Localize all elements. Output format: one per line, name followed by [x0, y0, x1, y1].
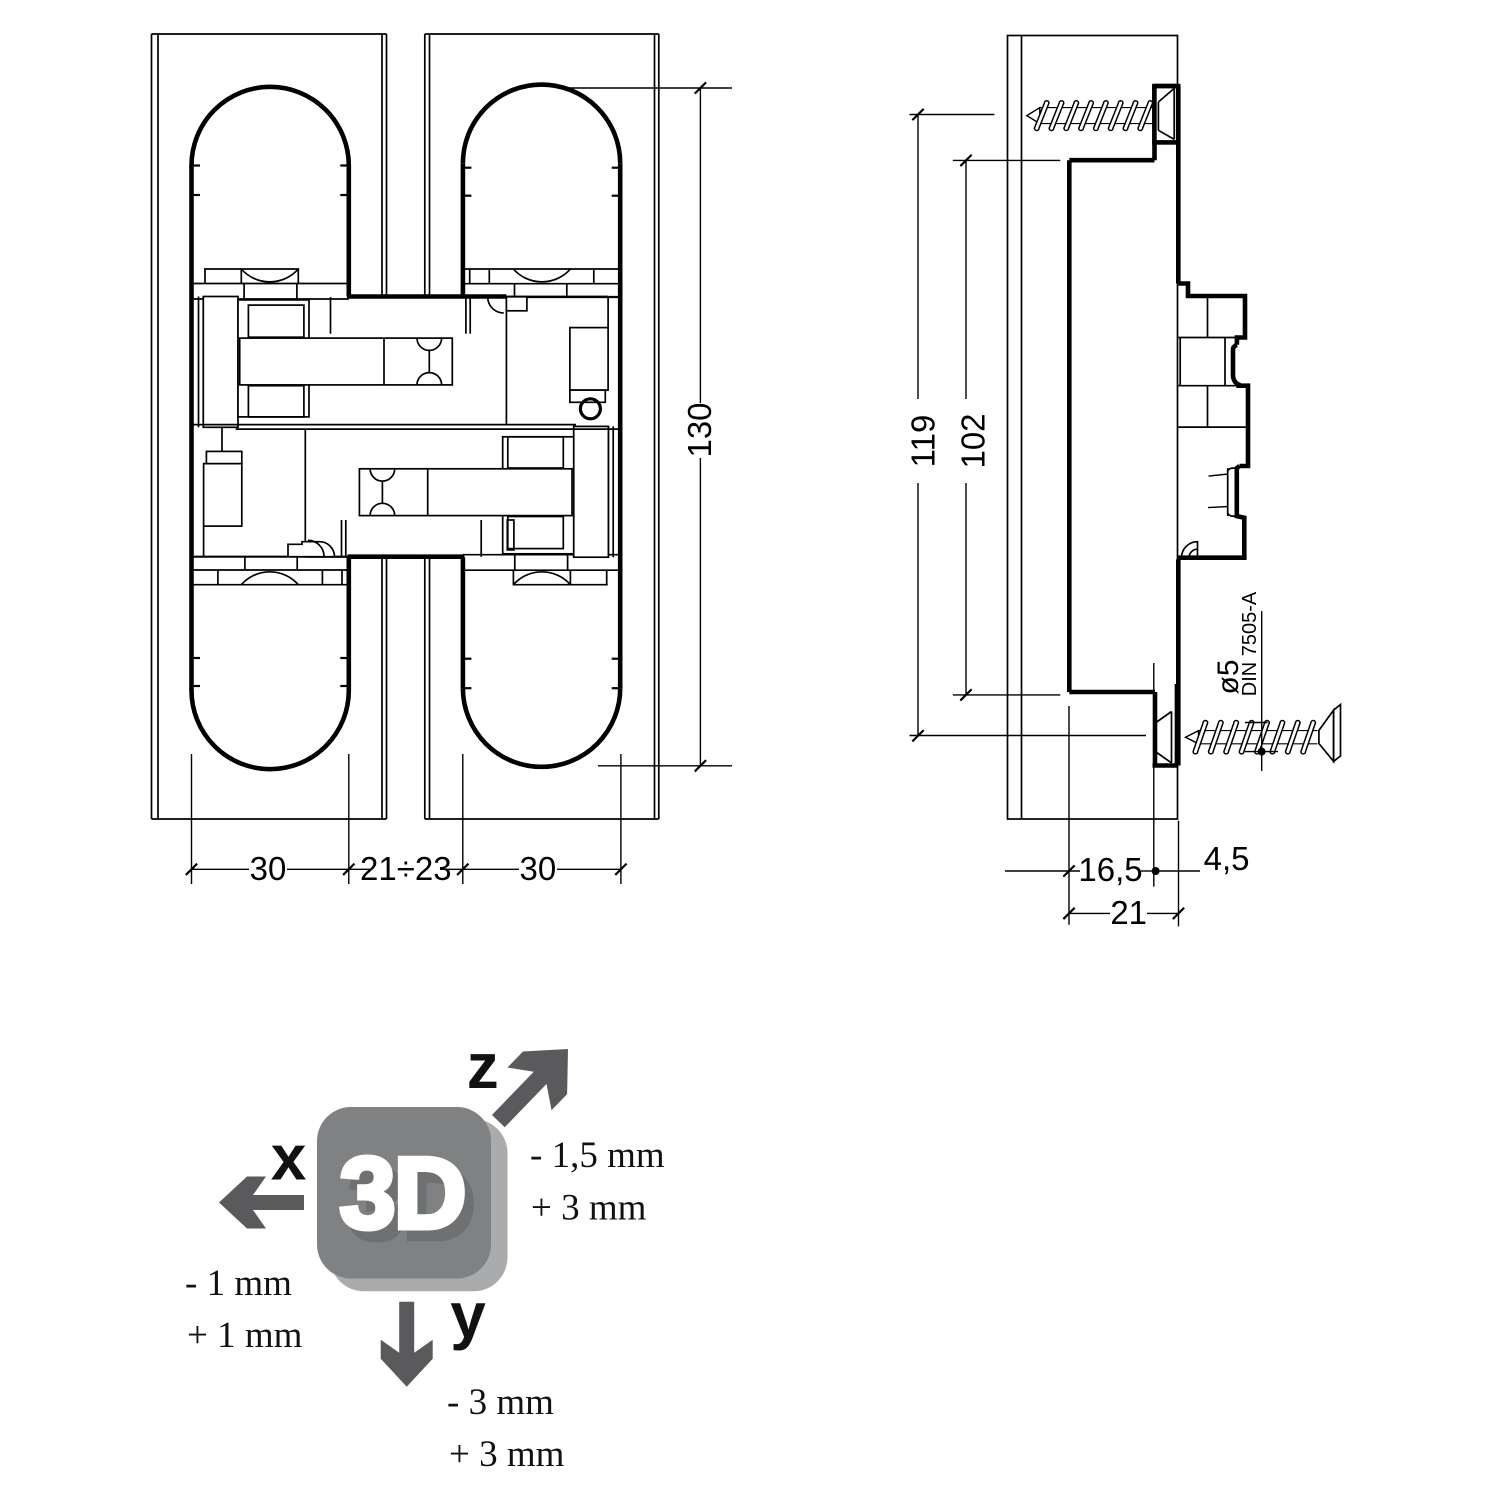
svg-text:- 3 mm: - 3 mm	[447, 1382, 554, 1423]
svg-text:z: z	[467, 1030, 499, 1102]
svg-text:21÷23: 21÷23	[360, 850, 452, 887]
svg-text:+ 1 mm: + 1 mm	[187, 1315, 303, 1356]
svg-text:30: 30	[520, 850, 557, 887]
svg-text:3D: 3D	[339, 1138, 464, 1250]
svg-text:x: x	[271, 1122, 307, 1194]
svg-text:130: 130	[681, 402, 718, 457]
svg-text:- 1 mm: - 1 mm	[185, 1263, 292, 1304]
svg-text:21: 21	[1110, 894, 1147, 931]
svg-text:30: 30	[250, 850, 287, 887]
svg-text:119: 119	[905, 415, 942, 468]
svg-text:- 1,5 mm: - 1,5 mm	[530, 1135, 665, 1176]
svg-text:4,5: 4,5	[1204, 840, 1250, 877]
svg-text:16,5: 16,5	[1078, 851, 1142, 888]
svg-text:102: 102	[955, 413, 992, 468]
svg-text:+ 3 mm: + 3 mm	[449, 1434, 565, 1475]
svg-text:DIN 7505-A: DIN 7505-A	[1239, 591, 1261, 696]
svg-text:y: y	[450, 1279, 486, 1351]
svg-text:+ 3 mm: + 3 mm	[531, 1188, 647, 1229]
